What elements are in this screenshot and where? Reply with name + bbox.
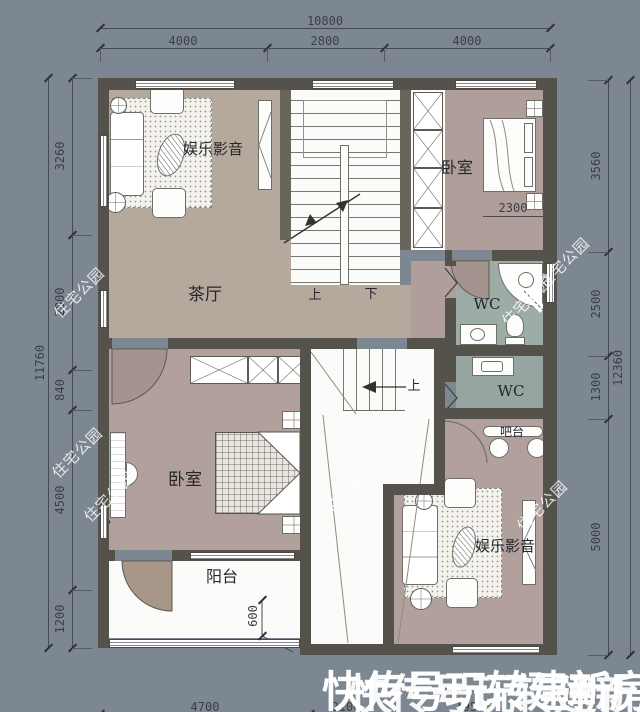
watermark-text: 住宅公园 [47,422,107,482]
watermark-text: 住宅公园 [307,470,367,530]
bottom-overlay-text-2: 快传号玩转建新房 [349,661,640,712]
watermarks: 住宅公园住宅公园住宅公园住宅公园住宅公园住宅公园住宅公园 [0,0,640,712]
floor-plan-canvas: 娱乐影音 卧室 茶厅 WC WC 吧台 卧室 娱乐影音 阳台 上 下 上 230… [0,0,640,712]
watermark-text: 住宅公园 [512,475,572,535]
watermark-text: 住宅公园 [49,262,109,322]
watermark-text: 住宅公园 [534,232,594,292]
watermark-text: 住宅公园 [79,466,139,526]
